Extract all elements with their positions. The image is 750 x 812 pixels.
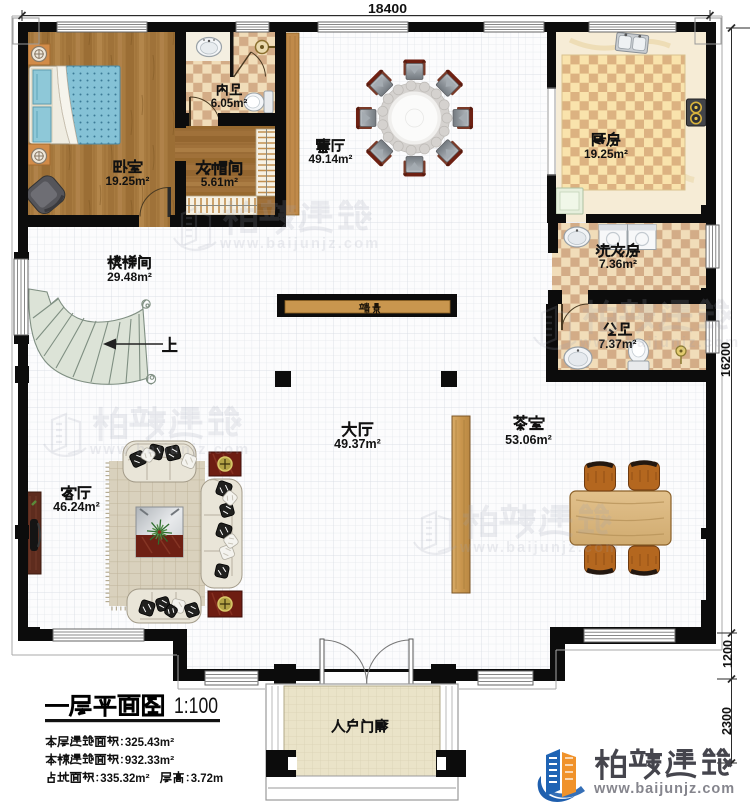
svg-text:29.48m²: 29.48m² bbox=[107, 270, 152, 284]
svg-text:1:100: 1:100 bbox=[174, 693, 218, 718]
svg-text:1200: 1200 bbox=[721, 640, 735, 668]
svg-text:932.33m: 932.33m bbox=[125, 755, 170, 767]
svg-text:19.25m²: 19.25m² bbox=[106, 174, 150, 188]
svg-text:²: ² bbox=[146, 773, 150, 785]
svg-text:18400: 18400 bbox=[368, 2, 407, 16]
svg-text:5.61m²: 5.61m² bbox=[201, 175, 238, 189]
svg-text:www.baijunjz.com: www.baijunjz.com bbox=[593, 781, 735, 797]
svg-text:²: ² bbox=[170, 755, 174, 767]
svg-text:325.43m: 325.43m bbox=[125, 737, 170, 749]
svg-text:6.05m²: 6.05m² bbox=[211, 98, 248, 110]
svg-text:www.baijunjz.com: www.baijunjz.com bbox=[459, 540, 620, 556]
svg-text:www.baijunjz.com: www.baijunjz.com bbox=[89, 442, 250, 458]
svg-text:16200: 16200 bbox=[719, 342, 733, 377]
svg-text:46.24m²: 46.24m² bbox=[53, 500, 100, 514]
svg-text:2300: 2300 bbox=[720, 707, 734, 735]
svg-text:²: ² bbox=[170, 737, 174, 749]
svg-text:19.25m²: 19.25m² bbox=[584, 147, 628, 161]
svg-text:7.36m²: 7.36m² bbox=[599, 257, 637, 271]
svg-text:3.72m: 3.72m bbox=[191, 773, 223, 785]
svg-text:335.32m: 335.32m bbox=[100, 773, 145, 785]
svg-text:www.baijunjz.com: www.baijunjz.com bbox=[219, 236, 380, 252]
svg-text:53.06m²: 53.06m² bbox=[505, 433, 552, 447]
svg-text:49.14m²: 49.14m² bbox=[309, 152, 353, 166]
svg-text:www.baijunjz.com: www.baijunjz.com bbox=[579, 335, 740, 351]
svg-text:49.37m²: 49.37m² bbox=[334, 437, 381, 451]
